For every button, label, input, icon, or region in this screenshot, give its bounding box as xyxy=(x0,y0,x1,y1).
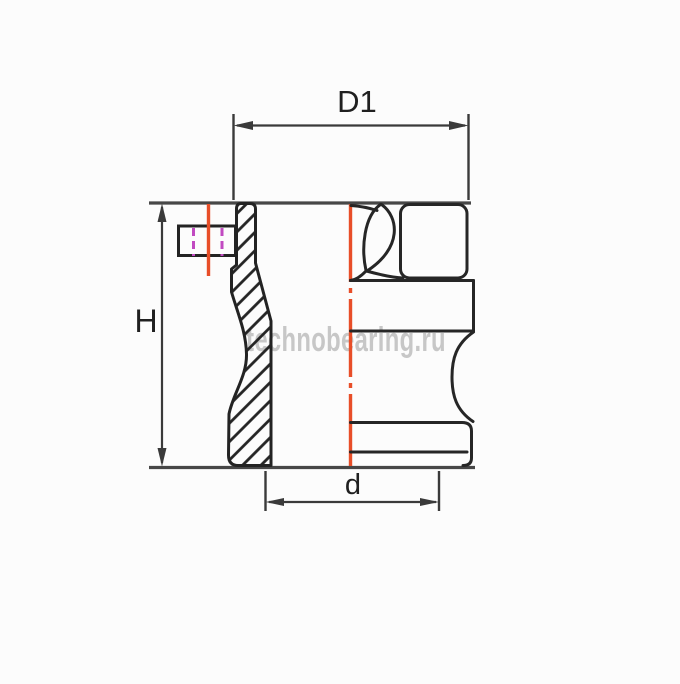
d1-arrowhead-right xyxy=(449,121,469,130)
groove-notch-curve xyxy=(452,332,474,422)
technical-drawing-svg: technobearing.ru D1 H d xyxy=(0,0,680,684)
hex-far-flat-face xyxy=(401,205,468,279)
d-arrowhead-left xyxy=(266,498,285,506)
d-arrowhead-right xyxy=(420,498,439,506)
d1-label: D1 xyxy=(337,84,377,119)
d-label: d xyxy=(345,469,361,501)
hex-chamfer-arc-bottom-right xyxy=(367,271,404,278)
h-arrowhead-bottom xyxy=(158,448,167,467)
watermark-text: technobearing.ru xyxy=(246,321,446,359)
cam-pin-detail xyxy=(179,204,236,276)
bottom-band-outline xyxy=(351,423,472,466)
hex-head xyxy=(351,205,468,281)
hex-chamfer-arc-top-left xyxy=(351,206,377,211)
d1-arrowhead-left xyxy=(234,121,254,130)
hex-corner-curve-left xyxy=(364,205,381,271)
dimension-h xyxy=(158,204,167,467)
bottom-band xyxy=(351,423,472,466)
h-label: H xyxy=(134,303,157,339)
dimension-d1 xyxy=(234,114,469,200)
h-arrowhead-top xyxy=(158,204,167,223)
drawing-canvas: technobearing.ru D1 H d xyxy=(0,0,680,684)
